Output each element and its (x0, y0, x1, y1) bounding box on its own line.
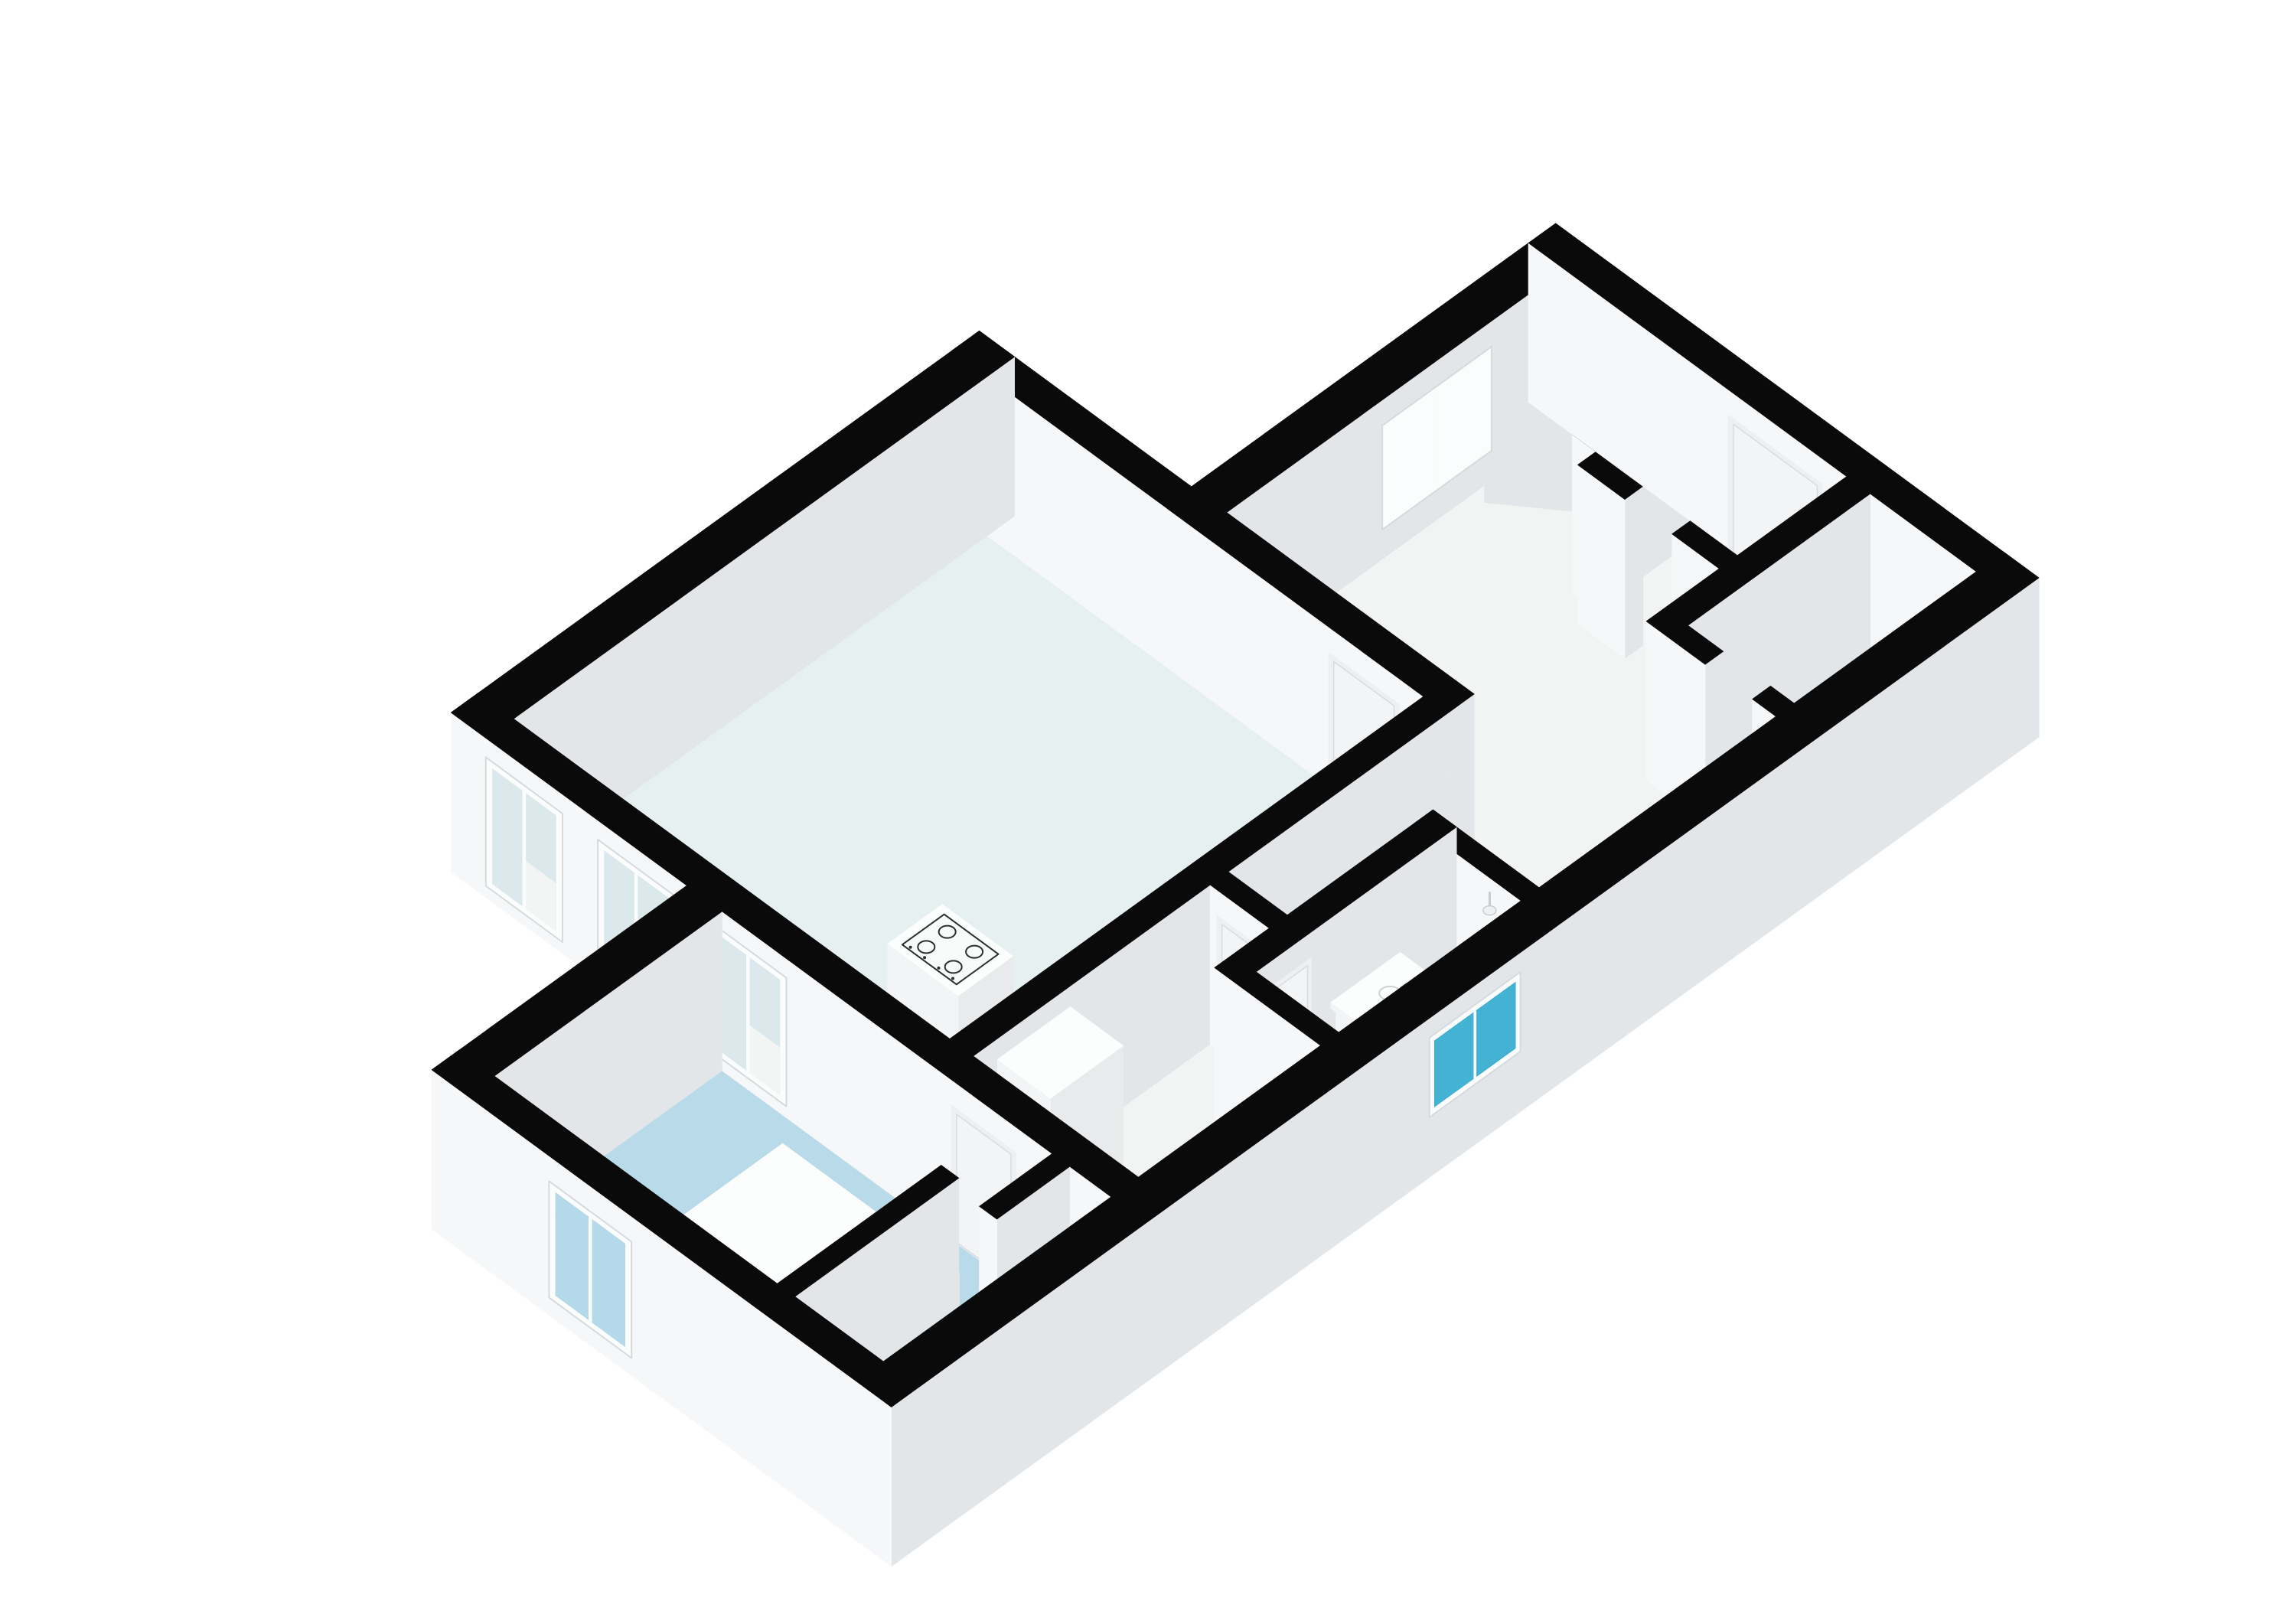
floor-plan-canvas (0, 0, 2296, 1624)
floor-plan-3d (0, 0, 2296, 1624)
wall-closet-partition-b (1577, 452, 1642, 658)
